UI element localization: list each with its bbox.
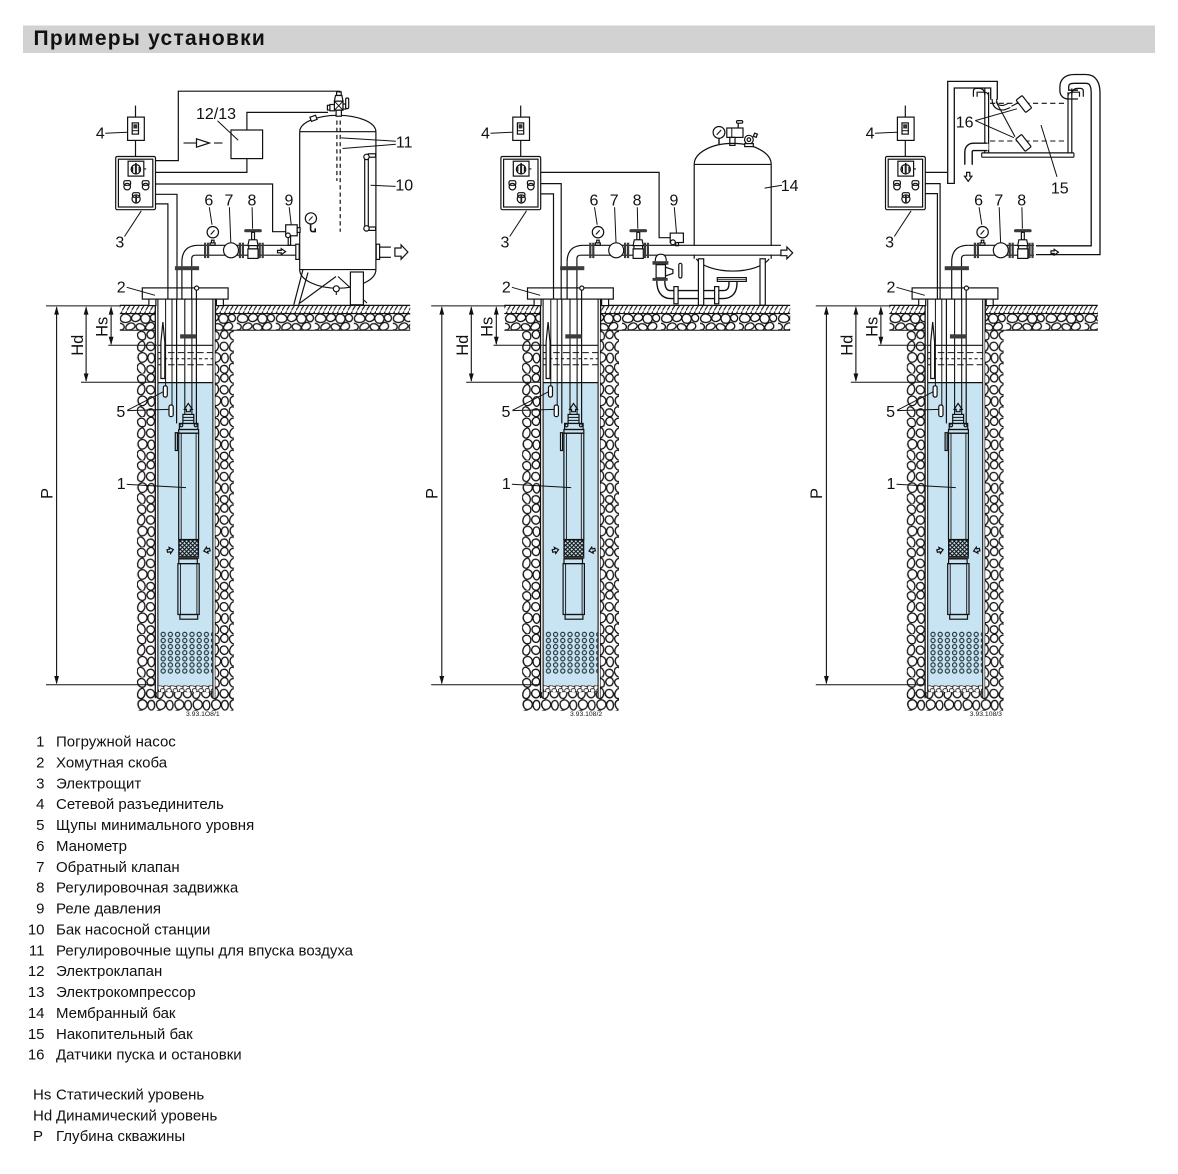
svg-text:4: 4 [481,126,490,143]
svg-text:Обратный клапан: Обратный клапан [56,859,180,876]
svg-text:Бак насосной станции: Бак насосной станции [56,921,210,938]
svg-text:4: 4 [36,796,44,813]
svg-text:Манометр: Манометр [56,838,127,855]
svg-text:Регулировочные щупы для впуска: Регулировочные щупы для впуска воздуха [56,942,354,959]
svg-text:Глубина скважины: Глубина скважины [56,1128,185,1145]
svg-text:3: 3 [36,775,44,792]
svg-text:9: 9 [284,192,293,209]
svg-text:8: 8 [36,880,44,897]
svg-text:Погружной насос: Погружной насос [56,734,176,751]
svg-text:Реле давления: Реле давления [56,901,161,918]
svg-text:14: 14 [28,1005,45,1022]
svg-text:Накопительный бак: Накопительный бак [56,1026,193,1043]
svg-text:Динамический уровень: Динамический уровень [56,1107,217,1124]
svg-text:12: 12 [28,963,45,980]
svg-text:P: P [33,1128,43,1145]
svg-text:Электрокомпрессор: Электрокомпрессор [56,984,196,1001]
svg-text:2: 2 [36,754,44,771]
svg-text:Статический уровень: Статический уровень [56,1086,204,1103]
svg-text:Сетевой разъединитель: Сетевой разъединитель [56,796,224,813]
svg-text:3.93.108/3: 3.93.108/3 [970,711,1002,718]
svg-text:4: 4 [96,126,105,143]
svg-text:12/13: 12/13 [196,106,236,123]
svg-text:3.93.108/2: 3.93.108/2 [570,711,602,718]
svg-text:11: 11 [396,134,413,151]
svg-text:6: 6 [36,838,44,855]
svg-text:14: 14 [781,178,799,195]
svg-text:5: 5 [36,817,44,834]
svg-text:1: 1 [36,734,44,751]
svg-text:Щупы минимального уровня: Щупы минимального уровня [56,817,254,834]
svg-text:11: 11 [29,942,45,959]
svg-text:16: 16 [28,1047,45,1064]
svg-text:10: 10 [395,178,413,195]
svg-text:Примеры установки: Примеры установки [34,27,267,50]
svg-text:9: 9 [670,192,679,209]
svg-text:Hd: Hd [33,1107,52,1124]
svg-text:4: 4 [866,126,875,143]
svg-text:16: 16 [956,114,974,131]
svg-text:Мембранный бак: Мембранный бак [56,1005,176,1022]
svg-text:15: 15 [1051,180,1069,197]
svg-text:Датчики пуска и остановки: Датчики пуска и остановки [56,1047,242,1064]
svg-text:Хомутная скоба: Хомутная скоба [56,754,168,771]
svg-text:Регулировочная задвижка: Регулировочная задвижка [56,880,239,897]
svg-text:Электрощит: Электрощит [56,775,141,792]
svg-text:3: 3 [501,234,510,251]
svg-text:3.93.1O8/1: 3.93.1O8/1 [186,711,220,718]
svg-text:7: 7 [36,859,44,876]
svg-text:Электроклапан: Электроклапан [56,963,162,980]
svg-text:3: 3 [115,234,124,251]
svg-text:13: 13 [28,984,45,1001]
svg-text:10: 10 [28,921,45,938]
svg-text:3: 3 [885,234,894,251]
svg-text:9: 9 [36,901,44,918]
svg-text:15: 15 [28,1026,45,1043]
svg-text:Hs: Hs [33,1086,51,1103]
